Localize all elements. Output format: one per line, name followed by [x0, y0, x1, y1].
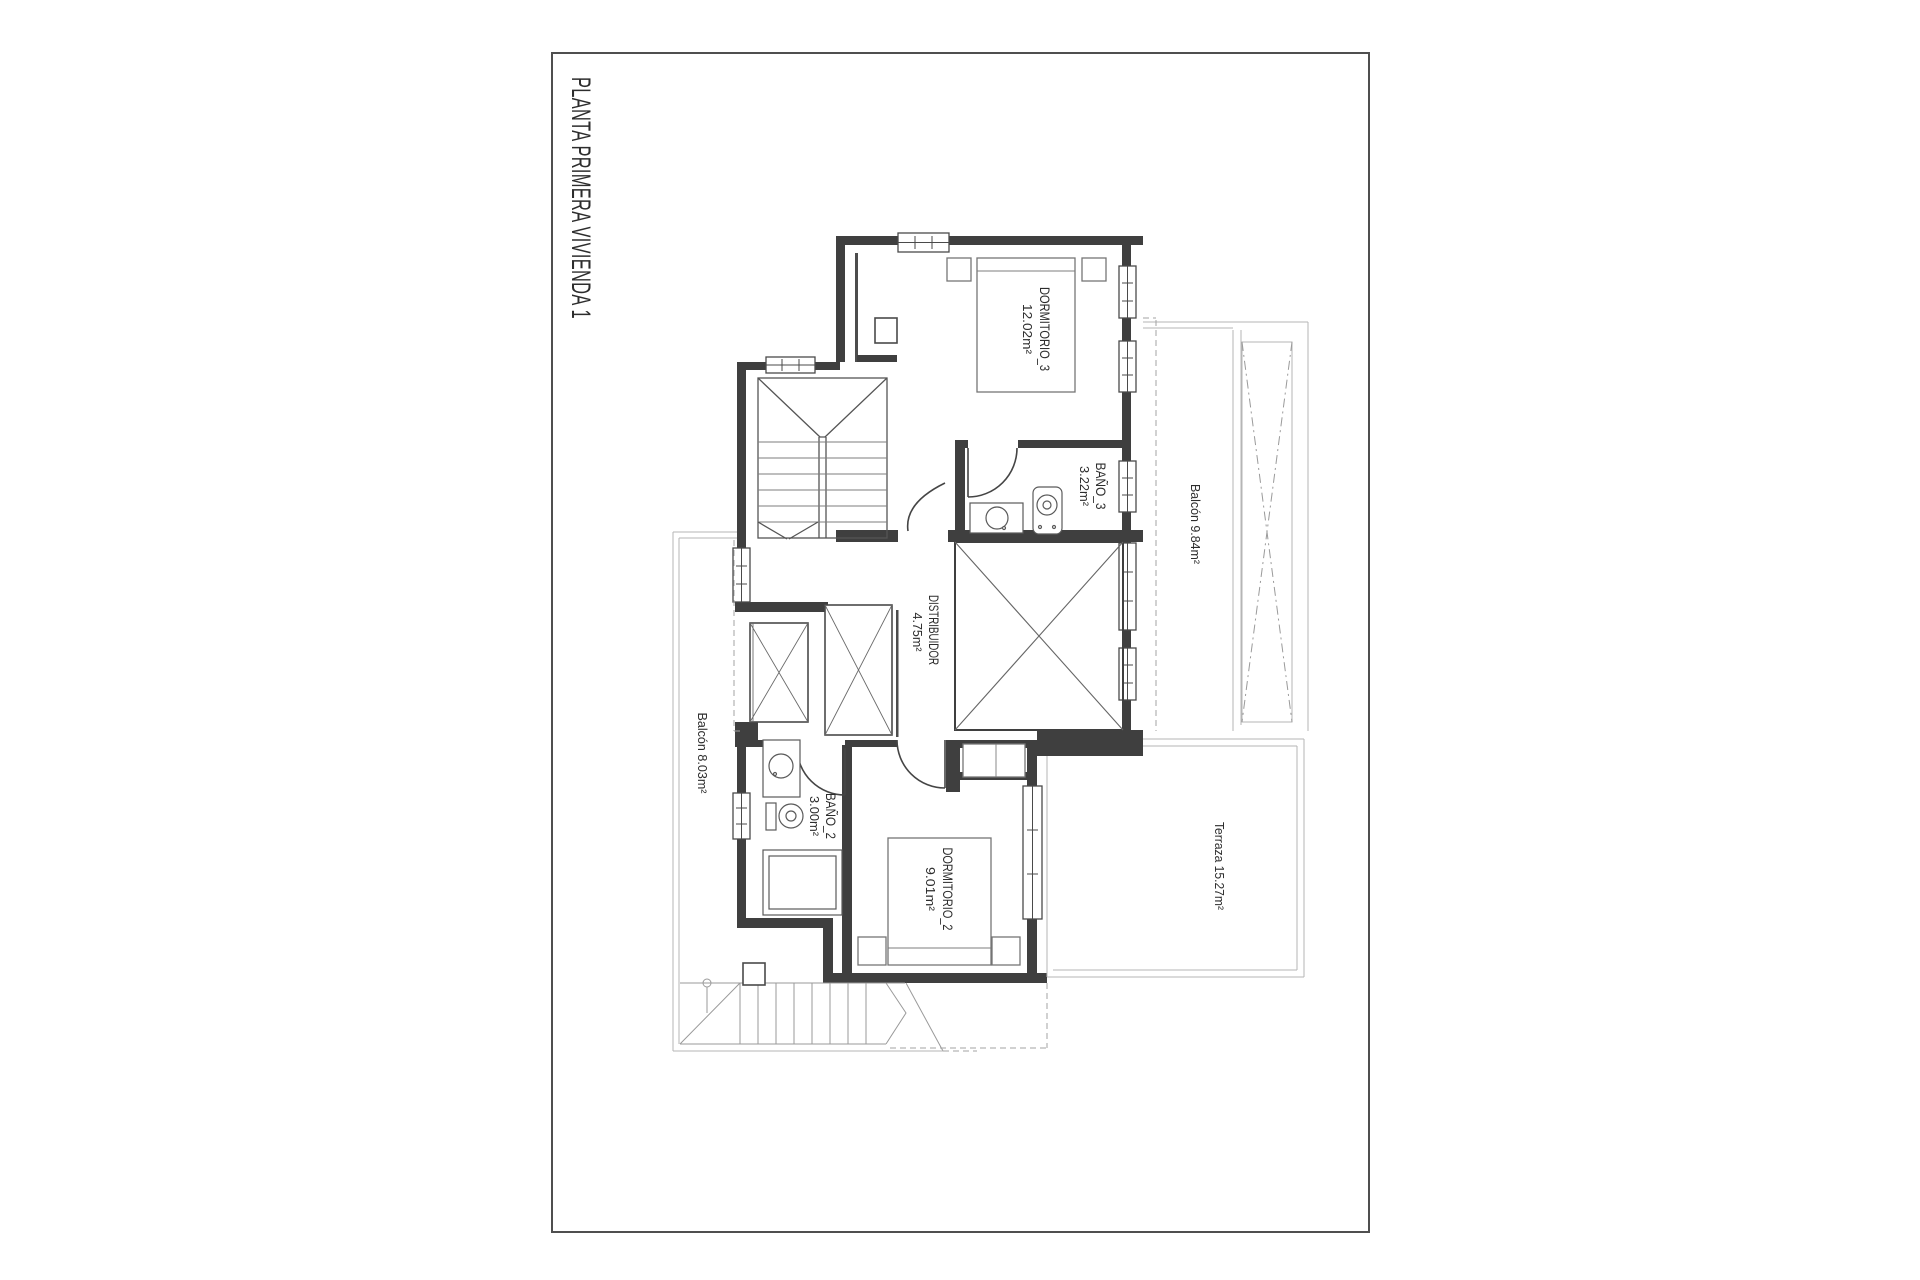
void-opening: [955, 542, 1123, 730]
window-right-5: [1119, 648, 1136, 700]
room-label-distribuidor: DISTRIBUIDOR: [926, 595, 941, 665]
furniture-dormitorio-3: [875, 258, 1106, 392]
area-label-dormitorio-3: 12.02m²: [1020, 304, 1035, 355]
stair-direction-arrow: [886, 983, 943, 1051]
washbasin: [769, 754, 793, 778]
area-label-dormitorio-2: 9.01m²: [923, 867, 938, 912]
toilet-tank: [766, 803, 776, 830]
window-right-3: [1119, 461, 1136, 512]
door-stair-hall: [908, 483, 945, 531]
window-left-hall: [733, 548, 750, 602]
area-label-bano-3: 3.22m²: [1077, 466, 1092, 507]
terrace-outline: [1047, 739, 1304, 977]
plan-title: PLANTA PRIMERA VIVIENDA 1: [566, 77, 596, 319]
room-label-terraza: Terraza 15.27m²: [1212, 822, 1227, 911]
door-dormitorio2: [897, 740, 945, 788]
door-bano2: [797, 748, 845, 795]
window-right-4: [1119, 543, 1136, 630]
sheet-frame: [552, 53, 1369, 1232]
washbasin: [986, 507, 1008, 529]
window-left-bath: [733, 793, 750, 839]
built-in-wardrobe: [963, 744, 1025, 777]
window-dormitorio2: [1023, 786, 1042, 919]
room-label-dormitorio-3: DORMITORIO_3: [1037, 287, 1052, 371]
staircase-main: [758, 378, 887, 539]
area-label-bano-2: 3.00m²: [807, 796, 822, 837]
room-label-bano-3: BAÑO_3: [1093, 463, 1108, 510]
window-right-1: [1119, 266, 1136, 318]
window-entry-top: [898, 233, 949, 252]
bed: [888, 838, 991, 965]
floor-plan-drawing: PLANTA PRIMERA VIVIENDA 1 DORMITORIO_3 1…: [0, 0, 1920, 1280]
blueprint-page: PLANTA PRIMERA VIVIENDA 1 DORMITORIO_3 1…: [0, 0, 1920, 1280]
area-label-distribuidor: 4.75m²: [910, 613, 925, 653]
nightstand: [1082, 258, 1106, 281]
window-right-2: [1119, 341, 1136, 392]
room-label-balcon-top: Balcón 9.84m²: [1188, 484, 1203, 565]
wardrobes: [750, 605, 892, 735]
window-stairs-top: [766, 357, 815, 373]
door-bano3: [968, 448, 1017, 497]
pillar: [743, 963, 765, 985]
nightstand: [947, 258, 971, 281]
room-label-balcon-left: Balcón 8.03m²: [695, 713, 710, 795]
room-label-bano-2: BAÑO_2: [823, 793, 838, 839]
room-label-dormitorio-2: DORMITORIO_2: [940, 848, 955, 931]
balcony-top-outline: [1143, 318, 1308, 731]
pillar: [875, 318, 897, 343]
nightstand: [992, 937, 1020, 965]
nightstand: [858, 937, 886, 965]
